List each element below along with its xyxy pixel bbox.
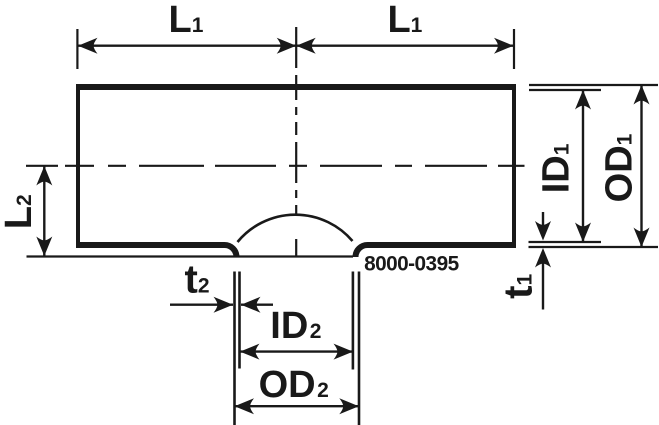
svg-text:L2: L2 xyxy=(0,194,40,229)
svg-text:OD1: OD1 xyxy=(599,133,641,202)
svg-text:t1: t1 xyxy=(497,273,541,298)
svg-text:OD2: OD2 xyxy=(259,364,329,406)
svg-text:t2: t2 xyxy=(184,257,209,301)
svg-text:ID1: ID1 xyxy=(535,143,577,193)
svg-text:L1: L1 xyxy=(387,0,422,41)
svg-text:L1: L1 xyxy=(169,0,204,41)
svg-text:8000-0395: 8000-0395 xyxy=(364,252,459,275)
svg-text:ID2: ID2 xyxy=(270,305,321,347)
